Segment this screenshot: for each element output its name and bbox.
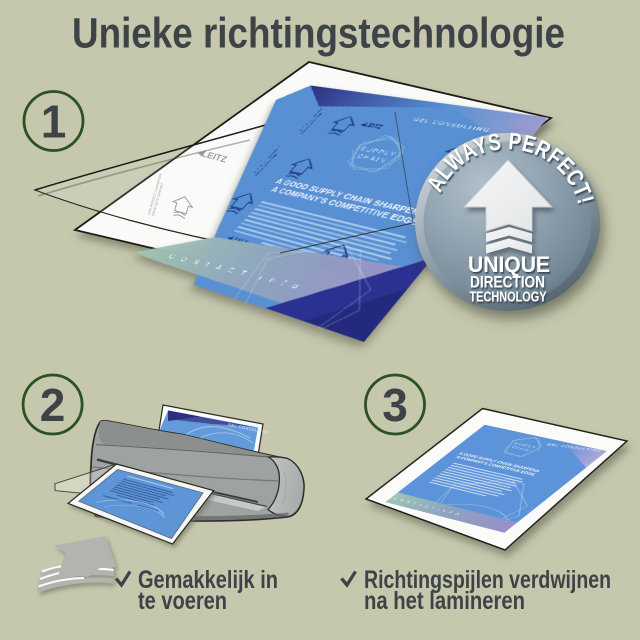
svg-text:TECHNOLOGY: TECHNOLOGY [470, 290, 547, 306]
